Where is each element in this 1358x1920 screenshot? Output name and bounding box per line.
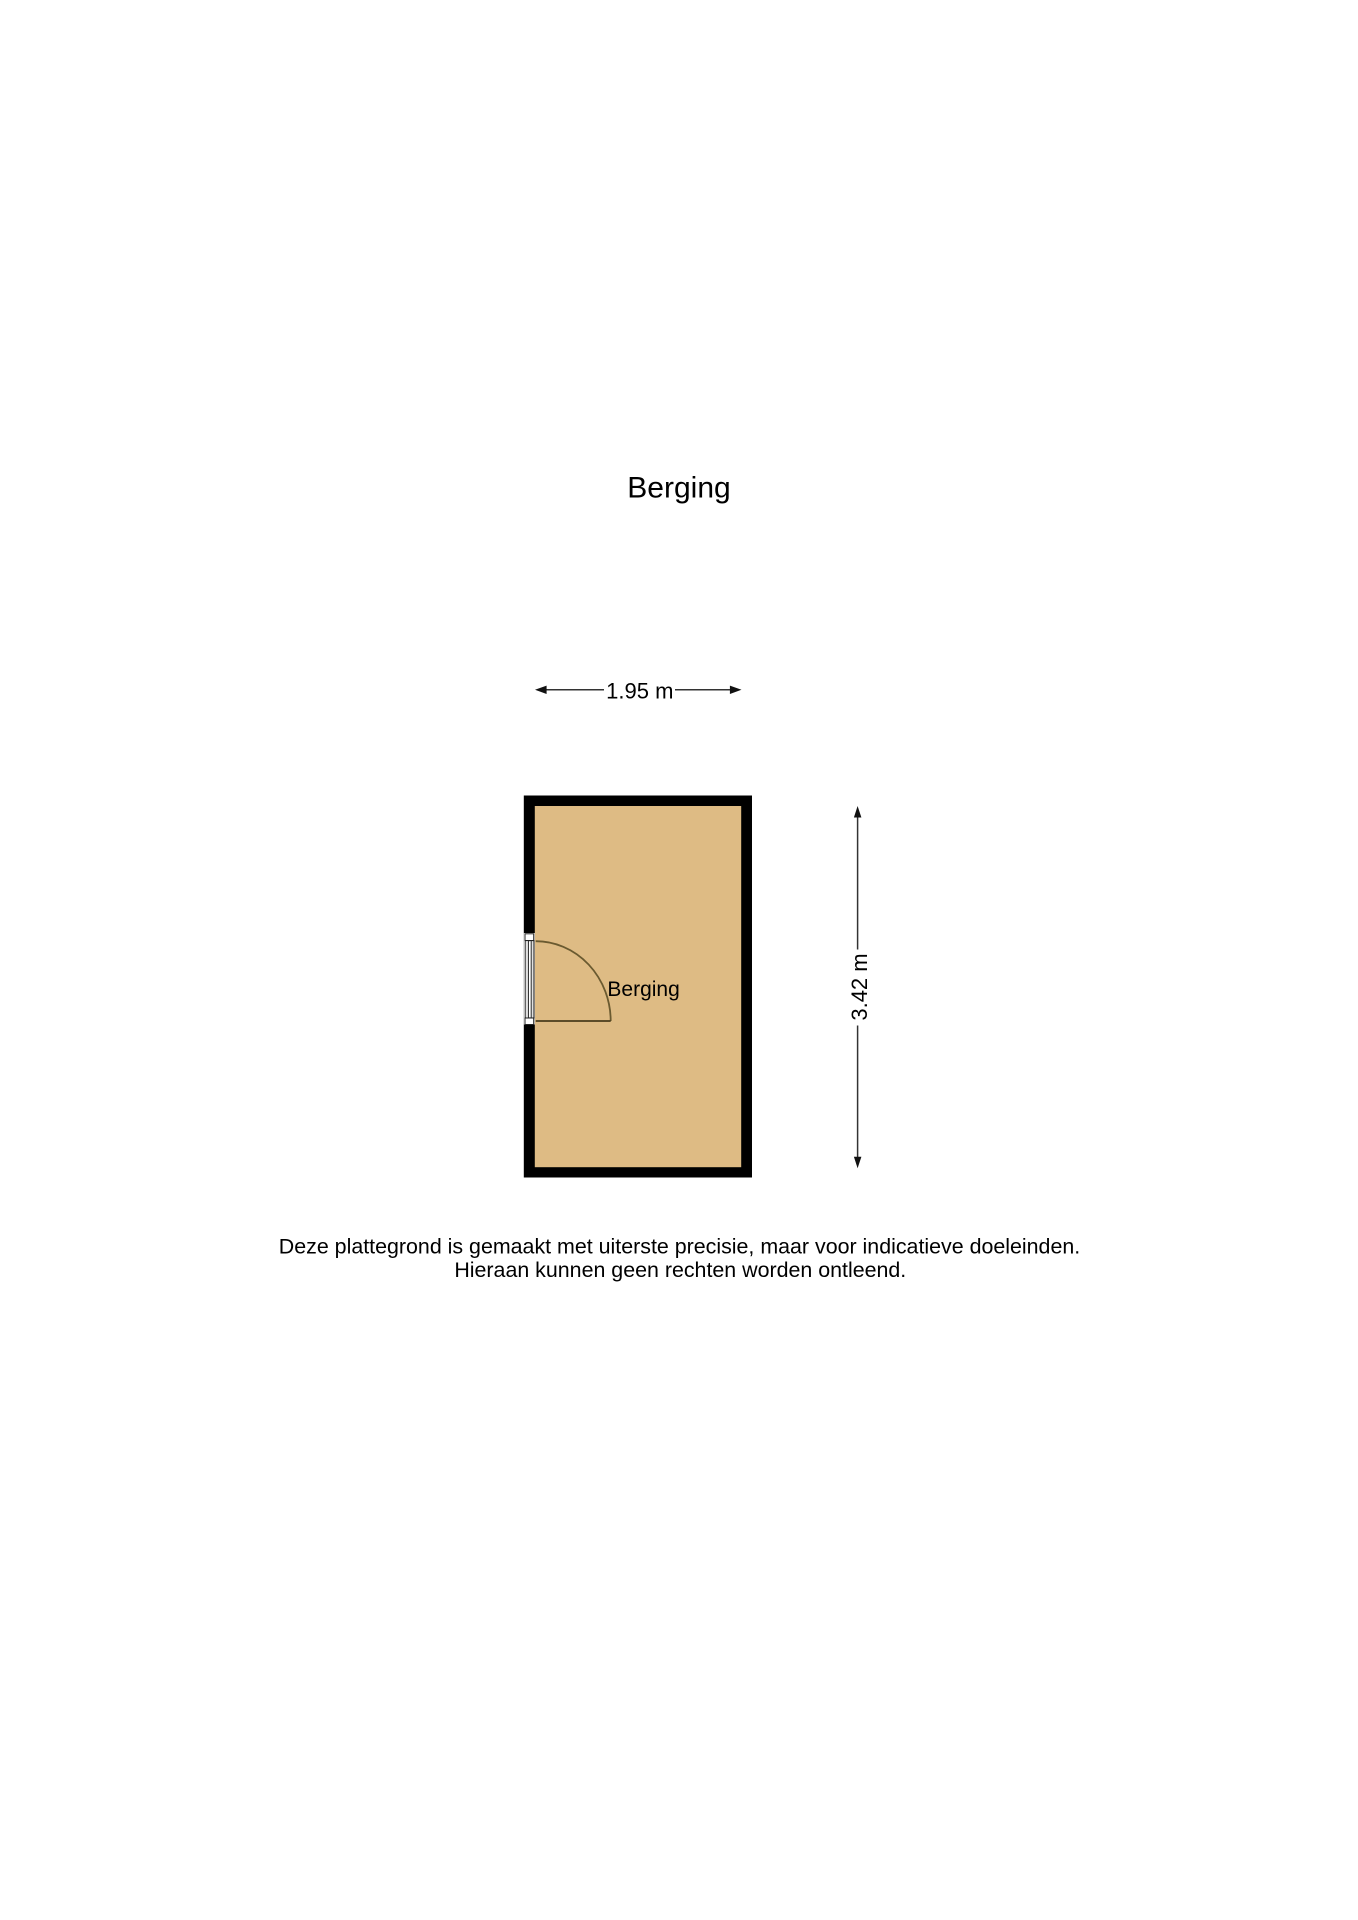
svg-text:Berging: Berging [607,978,679,1001]
svg-text:Hieraan kunnen geen rechten wo: Hieraan kunnen geen rechten worden ontle… [454,1258,906,1282]
svg-text:3.42 m: 3.42 m [847,953,872,1020]
svg-text:Berging: Berging [627,472,730,505]
svg-text:Deze plattegrond is gemaakt me: Deze plattegrond is gemaakt met uiterste… [279,1235,1080,1259]
svg-text:1.95 m: 1.95 m [606,678,673,703]
